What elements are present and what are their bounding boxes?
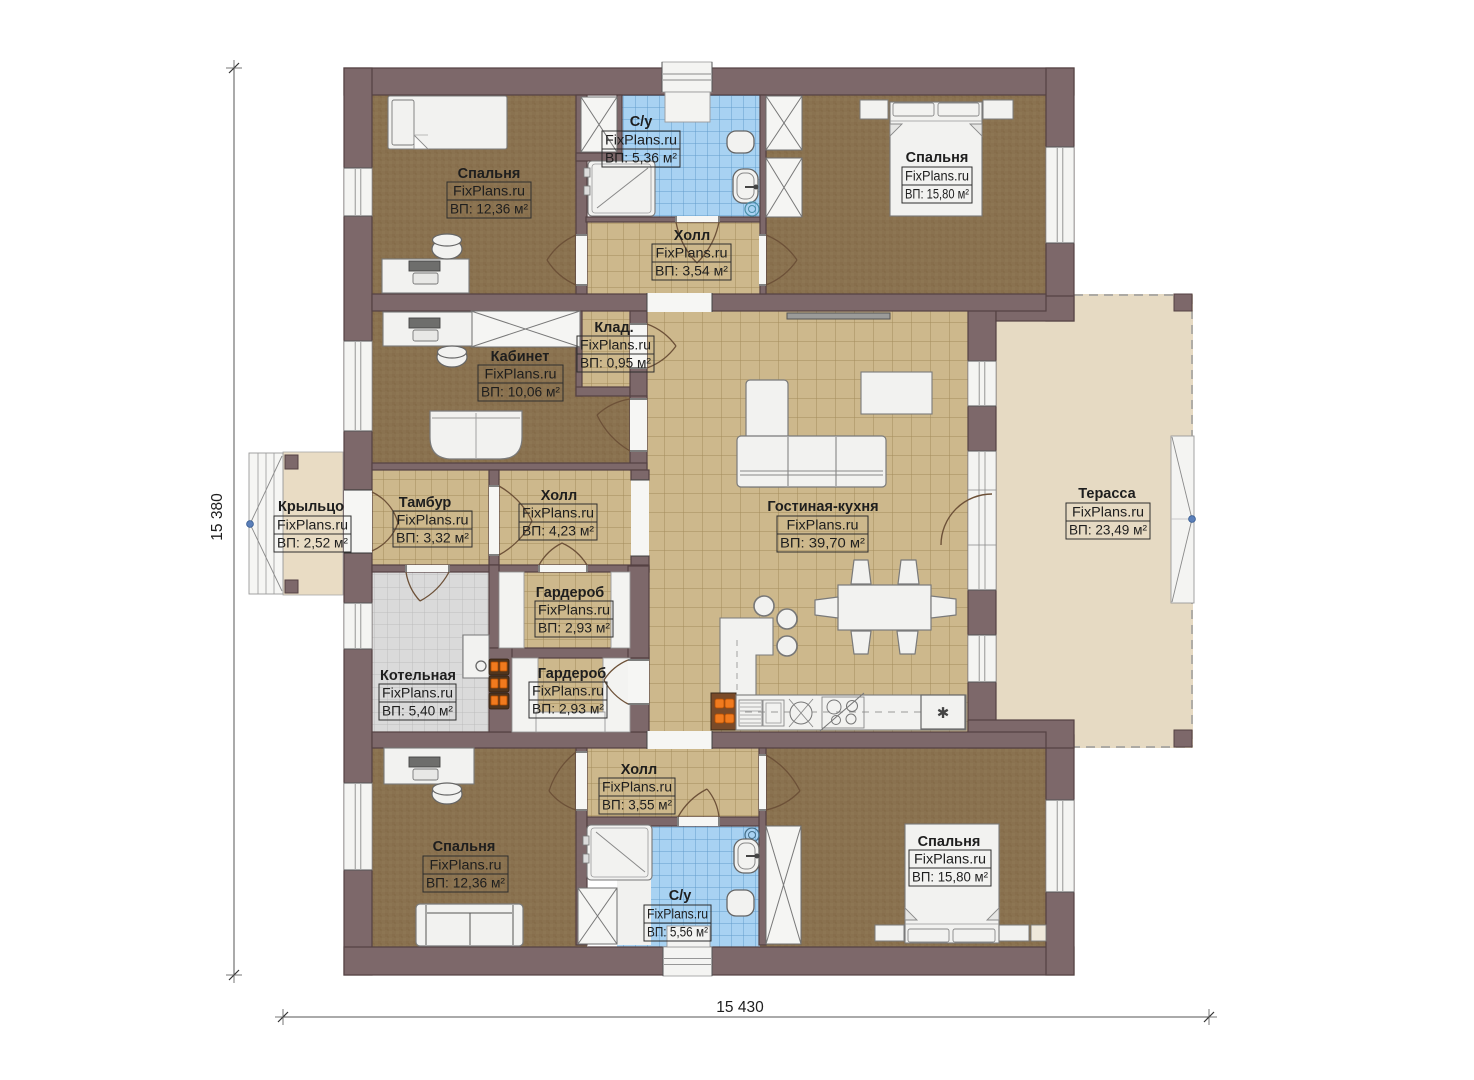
- svg-text:ВП: 12,36 м²: ВП: 12,36 м²: [426, 876, 506, 891]
- svg-text:Спальня: Спальня: [458, 166, 521, 182]
- svg-text:Холл: Холл: [674, 228, 710, 244]
- svg-text:FixPlans.ru: FixPlans.ru: [532, 684, 604, 699]
- svg-text:Холл: Холл: [541, 488, 577, 504]
- svg-text:ВП: 2,93 м²: ВП: 2,93 м²: [538, 621, 611, 636]
- svg-text:С/у: С/у: [630, 114, 653, 130]
- svg-text:Спальня: Спальня: [918, 834, 981, 850]
- svg-text:Крыльцо: Крыльцо: [278, 499, 344, 515]
- svg-text:FixPlans.ru: FixPlans.ru: [430, 858, 502, 873]
- svg-text:ВП: 5,56 м²: ВП: 5,56 м²: [647, 925, 708, 940]
- svg-text:С/у: С/у: [669, 888, 692, 904]
- svg-text:Спальня: Спальня: [433, 839, 496, 855]
- svg-text:FixPlans.ru: FixPlans.ru: [382, 686, 453, 701]
- svg-text:Гардероб: Гардероб: [538, 666, 607, 682]
- svg-text:Терасса: Терасса: [1078, 486, 1136, 502]
- svg-text:FixPlans.ru: FixPlans.ru: [485, 367, 557, 382]
- svg-text:FixPlans.ru: FixPlans.ru: [397, 513, 469, 528]
- svg-text:FixPlans.ru: FixPlans.ru: [522, 506, 594, 521]
- svg-text:FixPlans.ru: FixPlans.ru: [914, 852, 986, 867]
- svg-text:FixPlans.ru: FixPlans.ru: [453, 184, 525, 199]
- svg-text:FixPlans.ru: FixPlans.ru: [277, 518, 348, 533]
- svg-text:FixPlans.ru: FixPlans.ru: [1072, 505, 1144, 520]
- svg-text:ВП: 5,36 м²: ВП: 5,36 м²: [605, 151, 678, 166]
- svg-text:ВП: 3,55 м²: ВП: 3,55 м²: [602, 798, 673, 813]
- svg-text:ВП: 0,95 м²: ВП: 0,95 м²: [580, 356, 652, 371]
- svg-text:ВП: 12,36 м²: ВП: 12,36 м²: [450, 202, 528, 217]
- svg-text:ВП: 2,52 м²: ВП: 2,52 м²: [277, 536, 349, 551]
- svg-text:FixPlans.ru: FixPlans.ru: [647, 907, 708, 922]
- svg-text:15 380: 15 380: [209, 493, 226, 541]
- svg-text:15 430: 15 430: [716, 999, 764, 1016]
- svg-text:FixPlans.ru: FixPlans.ru: [538, 603, 610, 618]
- svg-text:ВП: 3,54 м²: ВП: 3,54 м²: [655, 264, 729, 279]
- svg-text:ВП: 3,32 м²: ВП: 3,32 м²: [396, 531, 470, 546]
- svg-text:ВП: 10,06 м²: ВП: 10,06 м²: [481, 385, 561, 400]
- svg-text:Тамбур: Тамбур: [399, 495, 452, 511]
- svg-text:FixPlans.ru: FixPlans.ru: [787, 518, 859, 533]
- svg-text:ВП: 5,40 м²: ВП: 5,40 м²: [382, 704, 454, 719]
- svg-text:Гардероб: Гардероб: [536, 585, 605, 601]
- svg-text:Кабинет: Кабинет: [491, 349, 550, 365]
- svg-text:✱: ✱: [937, 705, 950, 722]
- svg-text:FixPlans.ru: FixPlans.ru: [602, 780, 672, 795]
- svg-text:Холл: Холл: [621, 762, 657, 778]
- svg-text:FixPlans.ru: FixPlans.ru: [905, 169, 969, 184]
- svg-text:Спальня: Спальня: [906, 150, 969, 166]
- svg-text:Клад.: Клад.: [594, 320, 633, 336]
- svg-text:FixPlans.ru: FixPlans.ru: [656, 246, 728, 261]
- svg-text:Гостиная-кухня: Гостиная-кухня: [767, 499, 878, 515]
- svg-text:FixPlans.ru: FixPlans.ru: [605, 133, 677, 148]
- svg-text:FixPlans.ru: FixPlans.ru: [580, 338, 651, 353]
- svg-text:Котельная: Котельная: [380, 668, 456, 684]
- svg-text:ВП: 2,93 м²: ВП: 2,93 м²: [532, 702, 605, 717]
- svg-text:ВП: 15,80 м²: ВП: 15,80 м²: [912, 870, 988, 885]
- svg-text:ВП: 23,49 м²: ВП: 23,49 м²: [1069, 523, 1147, 538]
- svg-text:ВП: 15,80 м²: ВП: 15,80 м²: [905, 187, 969, 202]
- svg-text:ВП: 39,70 м²: ВП: 39,70 м²: [780, 536, 866, 551]
- svg-text:ВП: 4,23 м²: ВП: 4,23 м²: [522, 524, 595, 539]
